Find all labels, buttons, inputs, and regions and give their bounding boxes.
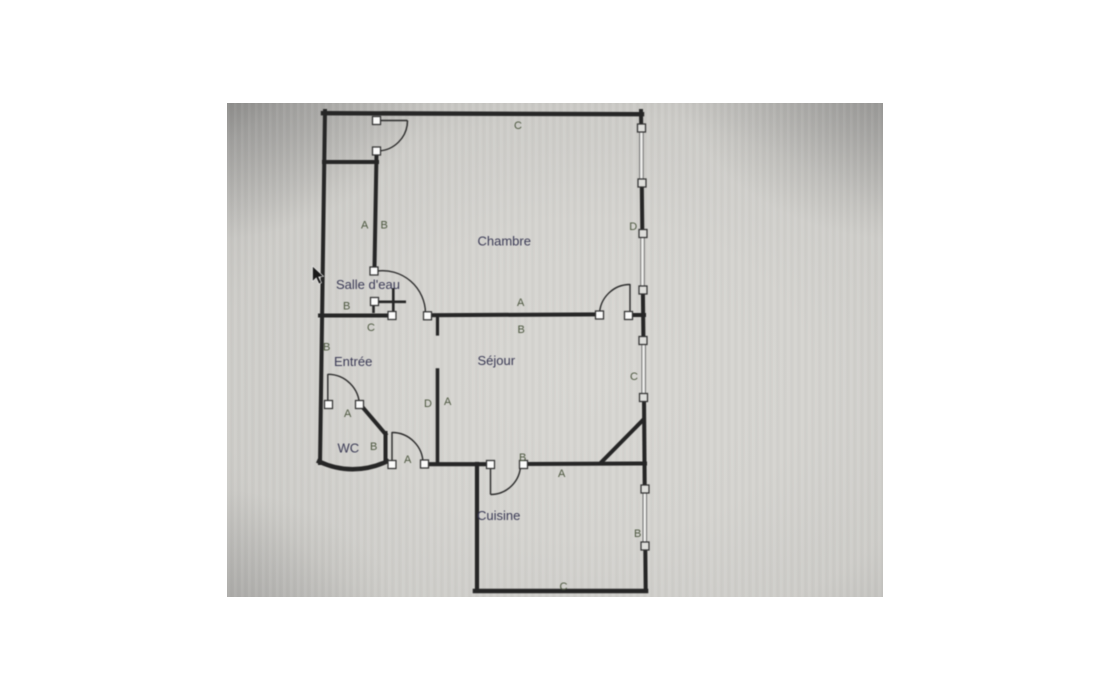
svg-text:Séjour: Séjour <box>478 353 516 368</box>
svg-text:Cuisine: Cuisine <box>477 508 520 523</box>
svg-text:C: C <box>367 322 375 334</box>
svg-text:B: B <box>370 441 377 453</box>
svg-text:D: D <box>424 398 432 410</box>
svg-text:B: B <box>323 342 330 354</box>
svg-text:A: A <box>558 468 566 480</box>
svg-text:B: B <box>518 324 525 336</box>
svg-text:C: C <box>630 371 638 383</box>
svg-text:A: A <box>404 454 412 466</box>
svg-text:C: C <box>514 120 522 132</box>
svg-text:A: A <box>517 297 525 309</box>
svg-text:B: B <box>519 452 526 464</box>
svg-text:Salle d'eau: Salle d'eau <box>336 277 400 292</box>
svg-text:Chambre: Chambre <box>478 234 531 249</box>
svg-text:B: B <box>343 301 350 313</box>
svg-text:A: A <box>361 220 369 232</box>
svg-text:C: C <box>560 581 568 593</box>
svg-text:A: A <box>444 396 452 408</box>
svg-text:Entrée: Entrée <box>334 354 372 369</box>
svg-text:A: A <box>344 408 352 420</box>
svg-text:B: B <box>381 220 388 232</box>
svg-text:B: B <box>634 528 641 540</box>
svg-text:D: D <box>629 221 637 233</box>
svg-text:WC: WC <box>338 441 360 456</box>
